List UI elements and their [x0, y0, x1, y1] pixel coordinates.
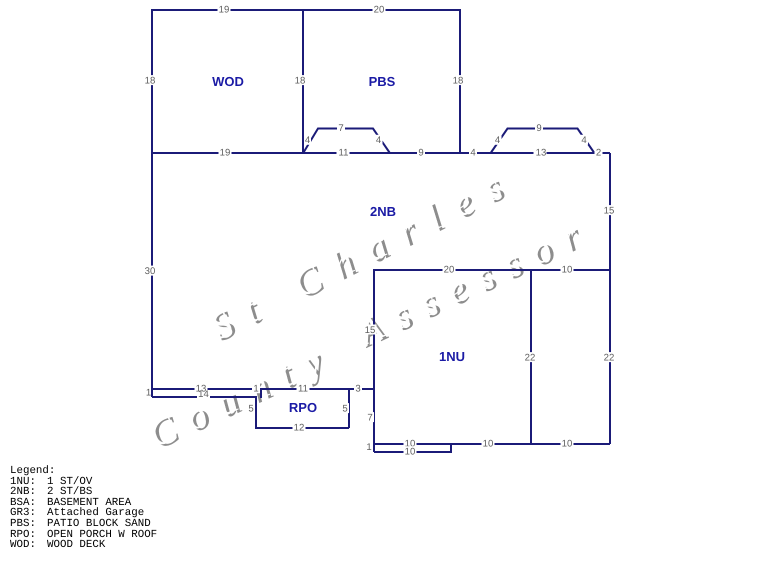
svg-text:4: 4 [376, 135, 382, 146]
svg-text:4: 4 [495, 135, 501, 146]
svg-text:19: 19 [219, 5, 230, 16]
svg-text:11: 11 [339, 148, 349, 159]
svg-text:9: 9 [536, 123, 541, 134]
svg-text:15: 15 [604, 206, 615, 217]
svg-text:RPO: RPO [289, 400, 317, 415]
svg-text:3: 3 [355, 384, 360, 395]
svg-text:22: 22 [525, 353, 536, 364]
svg-text:7: 7 [338, 123, 343, 134]
svg-text:14: 14 [198, 389, 209, 400]
svg-text:13: 13 [536, 148, 547, 159]
svg-text:1: 1 [146, 388, 151, 399]
svg-text:10: 10 [562, 439, 573, 450]
svg-text:15: 15 [365, 325, 376, 336]
svg-text:1: 1 [366, 442, 371, 453]
svg-text:4: 4 [581, 135, 587, 146]
svg-text:11: 11 [298, 384, 308, 395]
svg-text:18: 18 [145, 76, 156, 87]
svg-text:19: 19 [220, 148, 231, 159]
svg-text:County: County [142, 333, 342, 456]
svg-text:18: 18 [295, 76, 306, 87]
svg-text:1: 1 [253, 384, 258, 395]
svg-text:10: 10 [483, 439, 494, 450]
svg-text:WOOD DECK: WOOD DECK [47, 539, 106, 551]
svg-text:18: 18 [453, 76, 464, 87]
svg-text:7: 7 [367, 413, 372, 424]
svg-text:5: 5 [342, 404, 347, 415]
svg-text:12: 12 [294, 423, 305, 434]
svg-text:1NU: 1NU [439, 349, 465, 364]
svg-text:22: 22 [604, 353, 615, 364]
svg-text:5: 5 [248, 404, 253, 415]
svg-text:20: 20 [374, 5, 385, 16]
svg-text:4: 4 [470, 148, 476, 159]
svg-text:4: 4 [305, 135, 311, 146]
svg-text:WOD: WOD [212, 74, 244, 89]
svg-text:10: 10 [562, 265, 573, 276]
svg-text:30: 30 [145, 266, 156, 277]
svg-text:WOD:: WOD: [10, 539, 36, 551]
svg-text:2: 2 [596, 148, 601, 159]
svg-text:2NB: 2NB [370, 204, 396, 219]
svg-text:9: 9 [418, 148, 423, 159]
svg-text:20: 20 [444, 265, 455, 276]
svg-text:PBS: PBS [369, 74, 396, 89]
svg-text:10: 10 [405, 447, 416, 458]
